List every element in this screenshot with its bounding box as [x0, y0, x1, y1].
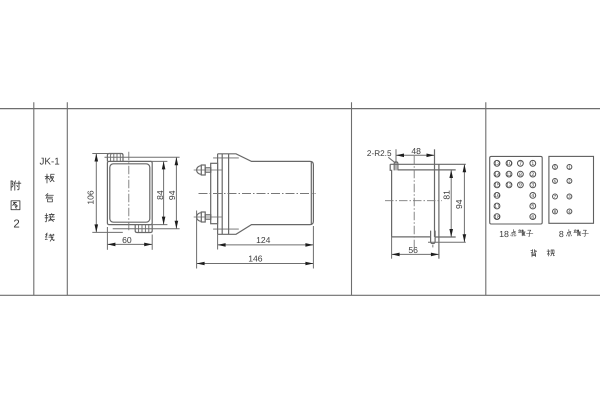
svg-text:6: 6 [531, 214, 534, 220]
svg-text:1: 1 [531, 161, 534, 167]
svg-text:2: 2 [531, 172, 534, 178]
svg-text:60: 60 [122, 235, 132, 245]
svg-text:18: 18 [494, 214, 500, 220]
svg-text:JK-1: JK-1 [40, 156, 60, 167]
svg-text:2-R2.5: 2-R2.5 [367, 149, 392, 158]
svg-text:2: 2 [13, 219, 19, 231]
svg-text:9: 9 [519, 183, 522, 189]
svg-text:3: 3 [531, 183, 534, 189]
svg-text:8: 8 [559, 229, 564, 239]
svg-text:94: 94 [454, 199, 464, 209]
svg-text:12: 12 [506, 183, 512, 189]
svg-text:81: 81 [442, 190, 452, 200]
svg-text:84: 84 [155, 190, 165, 200]
svg-text:94: 94 [167, 190, 177, 200]
svg-text:4: 4 [531, 193, 534, 199]
svg-text:48: 48 [411, 146, 421, 156]
svg-text:56: 56 [408, 245, 418, 255]
svg-text:146: 146 [248, 254, 263, 264]
svg-text:106: 106 [86, 190, 96, 205]
svg-text:10: 10 [506, 161, 512, 167]
svg-text:16: 16 [494, 193, 500, 199]
svg-text:14: 14 [494, 172, 500, 178]
svg-text:15: 15 [494, 183, 500, 189]
svg-text:124: 124 [256, 235, 271, 245]
svg-text:5: 5 [531, 204, 534, 210]
svg-text:17: 17 [494, 204, 500, 210]
svg-text:7: 7 [519, 161, 522, 167]
svg-text:8: 8 [519, 172, 522, 178]
svg-text:18: 18 [499, 229, 509, 239]
svg-text:11: 11 [506, 172, 511, 178]
svg-text:13: 13 [494, 161, 500, 167]
